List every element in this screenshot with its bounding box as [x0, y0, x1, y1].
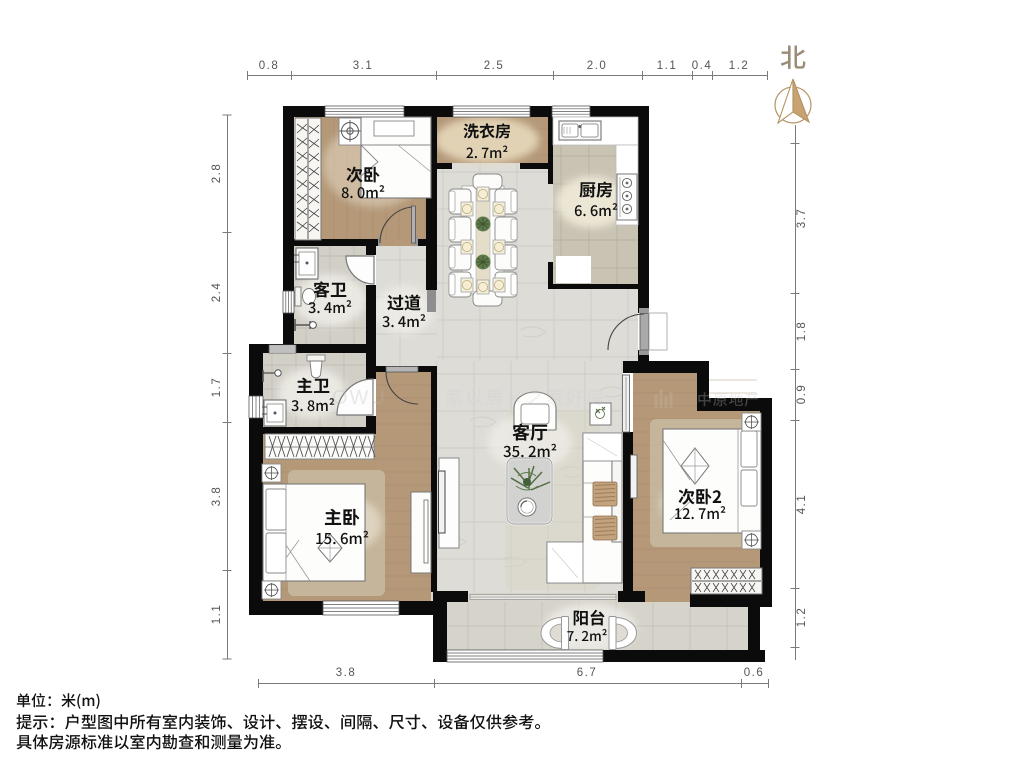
svg-text:3.7: 3.7 [796, 208, 808, 229]
svg-text:0.9: 0.9 [796, 384, 808, 405]
svg-text:2.0: 2.0 [587, 60, 608, 72]
svg-text:2.5: 2.5 [484, 60, 505, 72]
svg-text:3.1: 3.1 [353, 60, 374, 72]
svg-text:0.8: 0.8 [259, 60, 280, 72]
svg-text:OWU: OWU [332, 387, 387, 409]
svg-text:1.1: 1.1 [657, 60, 678, 72]
svg-text:6.7: 6.7 [577, 667, 598, 679]
svg-text:1.2: 1.2 [796, 607, 808, 628]
svg-text:1.1: 1.1 [211, 604, 223, 625]
svg-text:1.8: 1.8 [796, 321, 808, 342]
svg-text:0.4: 0.4 [692, 60, 713, 72]
svg-text:0.6: 0.6 [744, 667, 765, 679]
svg-text:1.7: 1.7 [211, 377, 223, 398]
svg-text:2.8: 2.8 [211, 163, 223, 184]
svg-text:3.8: 3.8 [211, 486, 223, 507]
svg-text:3.8: 3.8 [336, 667, 357, 679]
svg-text:2.4: 2.4 [211, 282, 223, 303]
svg-text:4.1: 4.1 [796, 494, 808, 515]
svg-text:1.2: 1.2 [729, 60, 750, 72]
